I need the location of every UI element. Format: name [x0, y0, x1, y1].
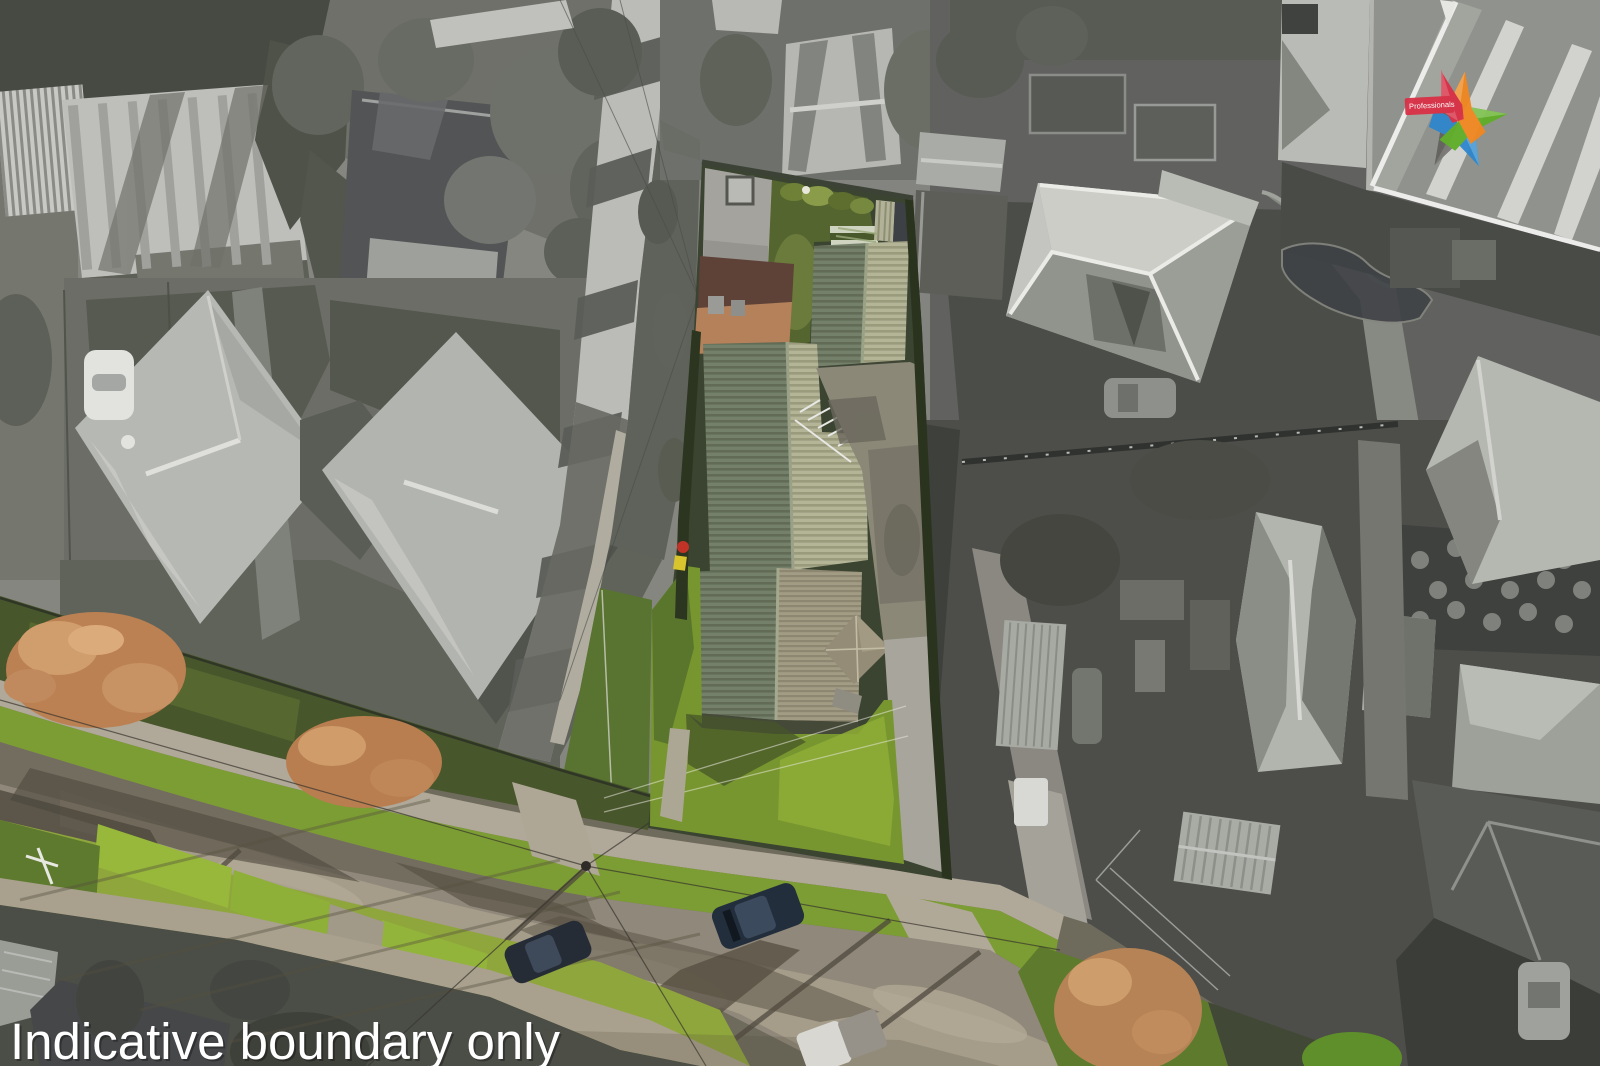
svg-text:Indicative boundary only: Indicative boundary only — [10, 1013, 561, 1066]
